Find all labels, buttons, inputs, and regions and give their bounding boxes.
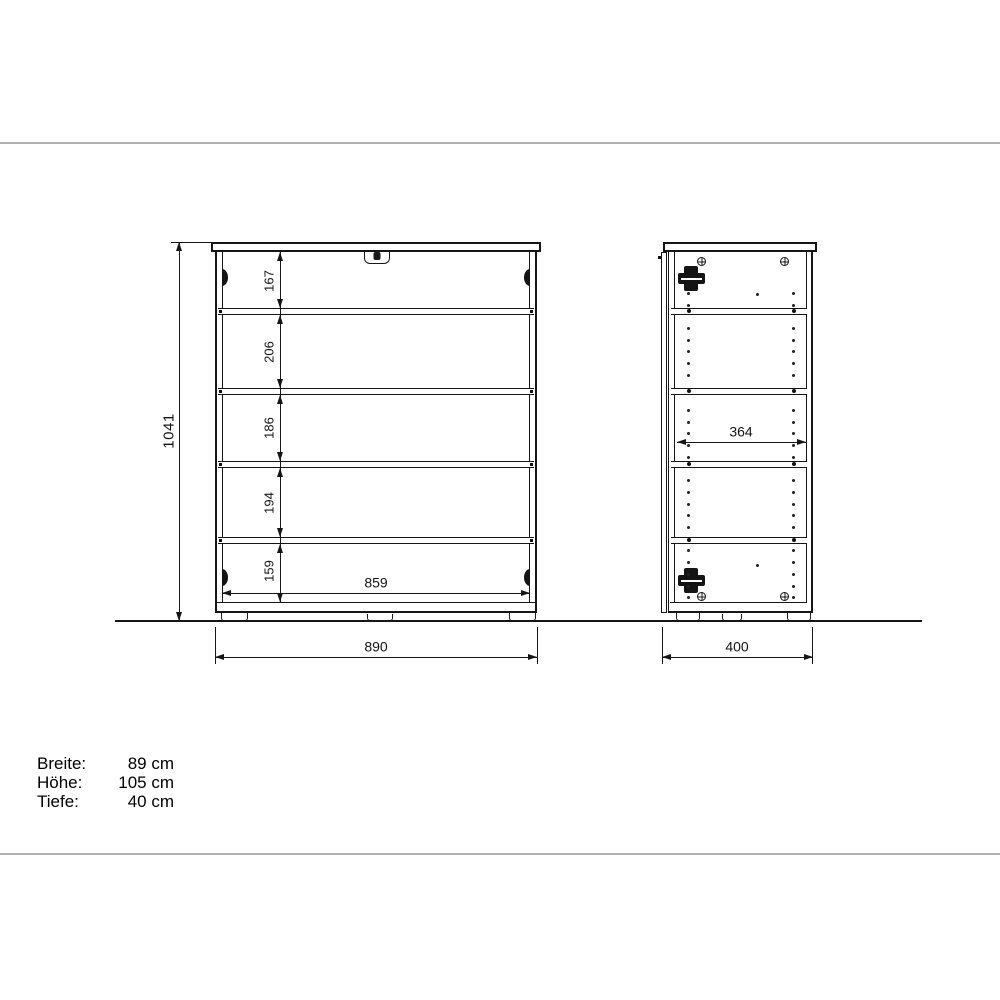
- arrowhead: [521, 590, 530, 596]
- arrowhead: [277, 252, 283, 261]
- front-shelf: [218, 308, 534, 315]
- door-hinge-icon: [524, 269, 530, 286]
- screw-icon: [697, 592, 706, 601]
- door-hinge-icon: [222, 269, 228, 286]
- back-panel-hole: [756, 293, 759, 296]
- arrowhead: [677, 439, 686, 445]
- dimension-line: [222, 593, 530, 594]
- top-separator-line: [0, 142, 1000, 144]
- arrowhead: [222, 590, 231, 596]
- dim-label-spacing-3: 186: [262, 414, 277, 442]
- side-right-inner-line: [806, 252, 807, 602]
- side-front-edge-line: [668, 252, 669, 613]
- front-right-wall: [535, 252, 537, 613]
- dimension-line: [179, 242, 180, 621]
- screw-icon: [780, 257, 789, 266]
- arrowhead: [277, 593, 283, 602]
- arrowhead: [176, 242, 182, 251]
- spec-label: Tiefe:: [37, 793, 101, 812]
- arrowhead: [277, 468, 283, 477]
- door-hinge-icon: [524, 569, 530, 586]
- arrowhead: [804, 654, 813, 660]
- side-shelf: [671, 461, 807, 468]
- bottom-separator-line: [0, 853, 1000, 855]
- product-dimension-sheet: 167 206 186 194 159 859 1041 890: [0, 0, 1000, 1000]
- front-top-board: [211, 242, 541, 252]
- front-left-wall-inner-line: [222, 252, 223, 602]
- dim-label-spacing-5: 159: [262, 557, 277, 585]
- arrowhead: [797, 439, 806, 445]
- arrowhead: [277, 299, 283, 308]
- front-shelf: [218, 461, 534, 468]
- arrowhead: [277, 379, 283, 388]
- extension-line: [537, 627, 538, 664]
- wall-mount-bracket-icon: [364, 252, 390, 264]
- dimension-specs: Breite: 89 cm Höhe: 105 cm Tiefe: 40 cm: [37, 755, 174, 811]
- spec-row-width: Breite: 89 cm: [37, 755, 174, 774]
- spec-value: 40 cm: [101, 793, 174, 812]
- spec-label: Breite:: [37, 755, 101, 774]
- bracket-screw-icon: [374, 252, 381, 260]
- arrowhead: [528, 654, 537, 660]
- side-bottom-board-line: [670, 602, 807, 603]
- side-shelf: [671, 388, 807, 395]
- side-back-wall: [811, 252, 813, 613]
- side-shelf: [671, 308, 807, 315]
- side-left-inner-line: [674, 252, 675, 602]
- screw-icon: [697, 257, 706, 266]
- dim-label-inner-width: 859: [361, 576, 390, 591]
- dim-label-overall-width: 890: [361, 640, 390, 655]
- dim-label-spacing-4: 194: [262, 489, 277, 517]
- spec-value: 89 cm: [101, 755, 174, 774]
- cabinet-hinge-icon: [678, 568, 705, 593]
- side-shelf: [671, 537, 807, 544]
- front-shelf: [218, 537, 534, 544]
- front-left-wall: [215, 252, 217, 613]
- arrowhead: [662, 654, 671, 660]
- dim-label-overall-height: 1041: [162, 410, 177, 451]
- door-hinge-icon: [222, 569, 228, 586]
- arrowhead: [277, 315, 283, 324]
- arrowhead: [277, 544, 283, 553]
- side-top-board: [663, 242, 817, 252]
- spec-row-height: Höhe: 105 cm: [37, 774, 174, 793]
- screw-icon: [780, 592, 789, 601]
- spec-label: Höhe:: [37, 774, 101, 793]
- front-bottom-board-line: [217, 602, 535, 603]
- dim-label-spacing-1: 167: [262, 267, 277, 295]
- spec-value: 105 cm: [101, 774, 174, 793]
- dimension-line: [662, 657, 813, 658]
- dimension-line: [215, 657, 537, 658]
- dim-label-inner-depth: 364: [726, 425, 755, 440]
- dim-label-spacing-2: 206: [262, 338, 277, 366]
- dim-label-overall-depth: 400: [722, 640, 751, 655]
- cabinet-hinge-icon: [678, 266, 705, 291]
- side-door-panel: [661, 252, 667, 613]
- front-bottom-edge: [215, 611, 537, 613]
- spec-row-depth: Tiefe: 40 cm: [37, 793, 174, 812]
- front-shelf: [218, 388, 534, 395]
- floor-line: [115, 620, 922, 622]
- arrowhead: [277, 395, 283, 404]
- arrowhead: [277, 452, 283, 461]
- dimension-line: [677, 442, 806, 443]
- arrowhead: [215, 654, 224, 660]
- shelf-pin-holes: [0, 0, 1000, 1000]
- back-panel-hole: [756, 564, 759, 567]
- arrowhead: [277, 528, 283, 537]
- front-right-wall-inner-line: [529, 252, 530, 602]
